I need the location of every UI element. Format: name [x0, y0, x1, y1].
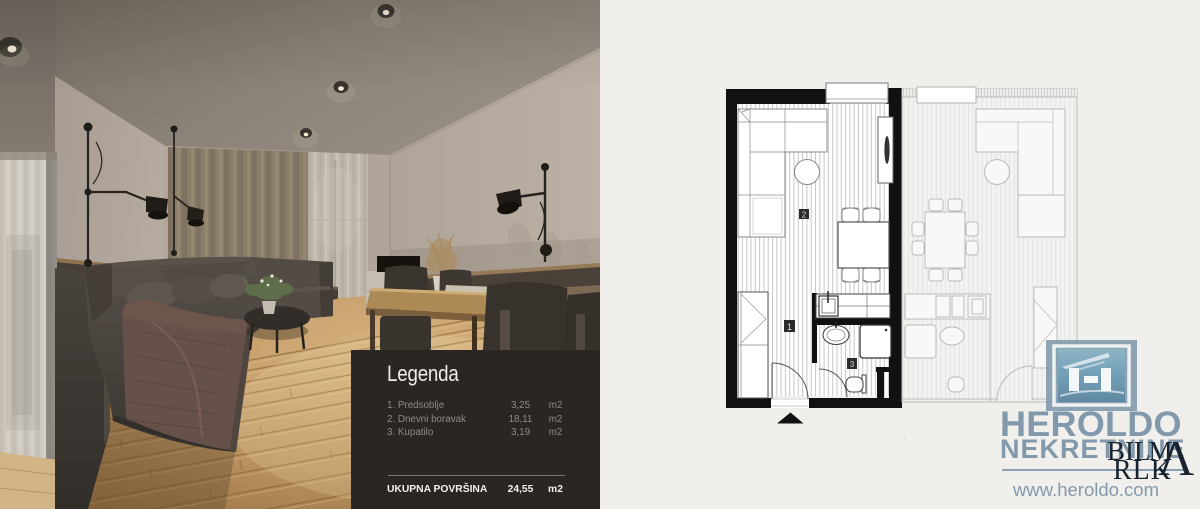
svg-text:2: 2 — [802, 211, 807, 220]
svg-text:1: 1 — [787, 322, 792, 332]
svg-text:3: 3 — [850, 360, 855, 369]
